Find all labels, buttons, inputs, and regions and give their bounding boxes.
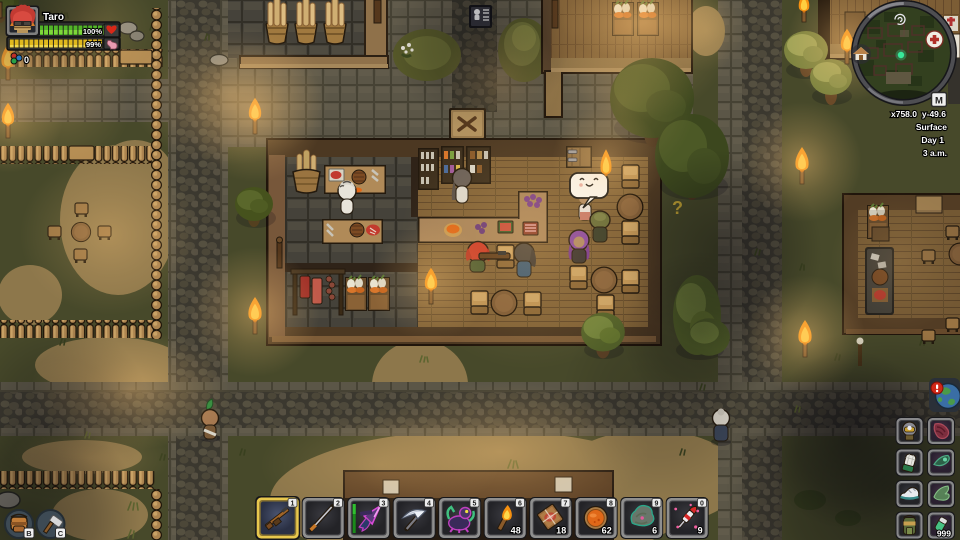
- svg-text:0: 0: [700, 501, 704, 508]
- svg-text:99%: 99%: [86, 40, 101, 49]
- svg-text:18: 18: [556, 526, 566, 536]
- svg-text:2: 2: [336, 501, 340, 508]
- svg-text:0: 0: [24, 55, 29, 65]
- svg-text:3 a.m.: 3 a.m.: [923, 148, 947, 158]
- svg-text:1: 1: [291, 501, 295, 508]
- svg-text:B: B: [26, 529, 32, 538]
- svg-text:9: 9: [698, 526, 703, 536]
- svg-text:7: 7: [564, 501, 568, 508]
- svg-text:Day 1: Day 1: [921, 135, 944, 145]
- svg-text:48: 48: [511, 526, 521, 536]
- svg-text:6: 6: [652, 526, 657, 536]
- svg-text:100%: 100%: [83, 27, 103, 36]
- svg-text:C: C: [58, 529, 64, 538]
- svg-text:Surface: Surface: [916, 122, 947, 132]
- svg-text:999: 999: [937, 529, 951, 539]
- svg-text:y-49.6: y-49.6: [922, 109, 946, 119]
- svg-text:3: 3: [382, 501, 386, 508]
- svg-text:x758.0: x758.0: [891, 109, 917, 119]
- svg-text:9: 9: [655, 501, 659, 508]
- svg-text:Taro: Taro: [43, 12, 64, 23]
- svg-text:4: 4: [427, 501, 431, 508]
- svg-text:62: 62: [602, 526, 612, 536]
- svg-text:6: 6: [518, 501, 522, 508]
- svg-text:M: M: [935, 96, 943, 107]
- svg-text:5: 5: [473, 501, 477, 508]
- svg-text:8: 8: [609, 501, 613, 508]
